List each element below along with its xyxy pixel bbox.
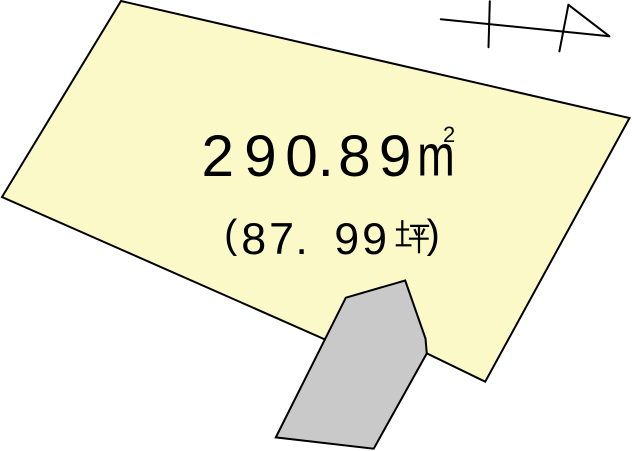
svg-text:(: ( xyxy=(224,213,237,257)
svg-text:7: 7 xyxy=(269,214,294,264)
svg-text:9: 9 xyxy=(244,124,277,189)
svg-text:): ) xyxy=(427,213,440,257)
svg-text:8: 8 xyxy=(338,124,371,189)
svg-text:.: . xyxy=(295,214,307,264)
svg-text:9: 9 xyxy=(362,214,387,264)
svg-text:2: 2 xyxy=(202,124,235,189)
svg-text:.: . xyxy=(318,124,334,189)
svg-text:9: 9 xyxy=(334,214,359,264)
svg-text:9: 9 xyxy=(379,124,412,189)
svg-text:2: 2 xyxy=(443,122,455,147)
svg-text:0: 0 xyxy=(285,124,318,189)
svg-text:8: 8 xyxy=(241,214,266,264)
